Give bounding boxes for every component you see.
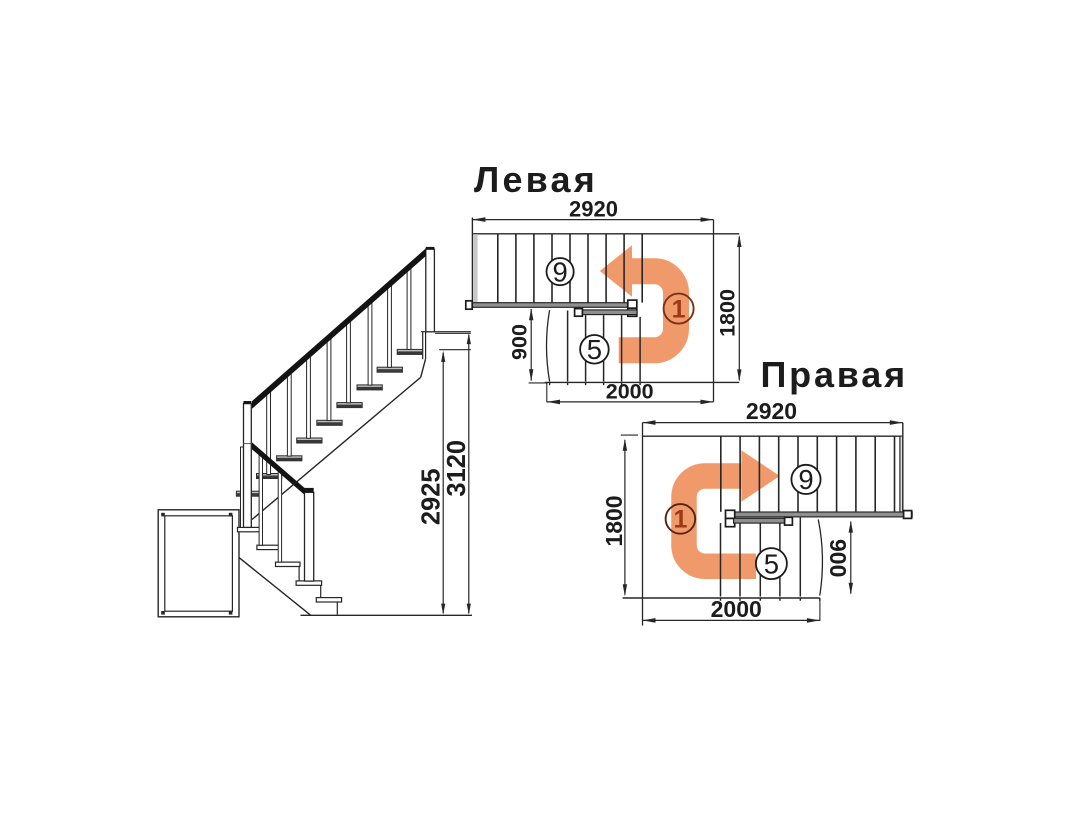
svg-text:1800: 1800 bbox=[601, 495, 627, 546]
svg-text:1: 1 bbox=[672, 295, 686, 323]
svg-text:3120: 3120 bbox=[443, 440, 471, 497]
svg-text:9: 9 bbox=[552, 256, 567, 287]
svg-text:2925: 2925 bbox=[417, 468, 445, 525]
svg-text:2920: 2920 bbox=[569, 196, 618, 221]
svg-text:900: 900 bbox=[507, 324, 531, 360]
svg-text:2000: 2000 bbox=[711, 596, 762, 622]
svg-text:Правая: Правая bbox=[761, 354, 908, 395]
svg-text:900: 900 bbox=[825, 539, 851, 577]
svg-text:5: 5 bbox=[587, 334, 602, 365]
svg-text:1: 1 bbox=[673, 506, 687, 534]
svg-text:Левая: Левая bbox=[474, 159, 598, 200]
svg-text:2000: 2000 bbox=[606, 380, 654, 404]
svg-text:9: 9 bbox=[798, 464, 813, 495]
svg-text:2920: 2920 bbox=[746, 398, 797, 424]
svg-text:5: 5 bbox=[764, 548, 779, 579]
svg-text:1800: 1800 bbox=[716, 289, 740, 337]
